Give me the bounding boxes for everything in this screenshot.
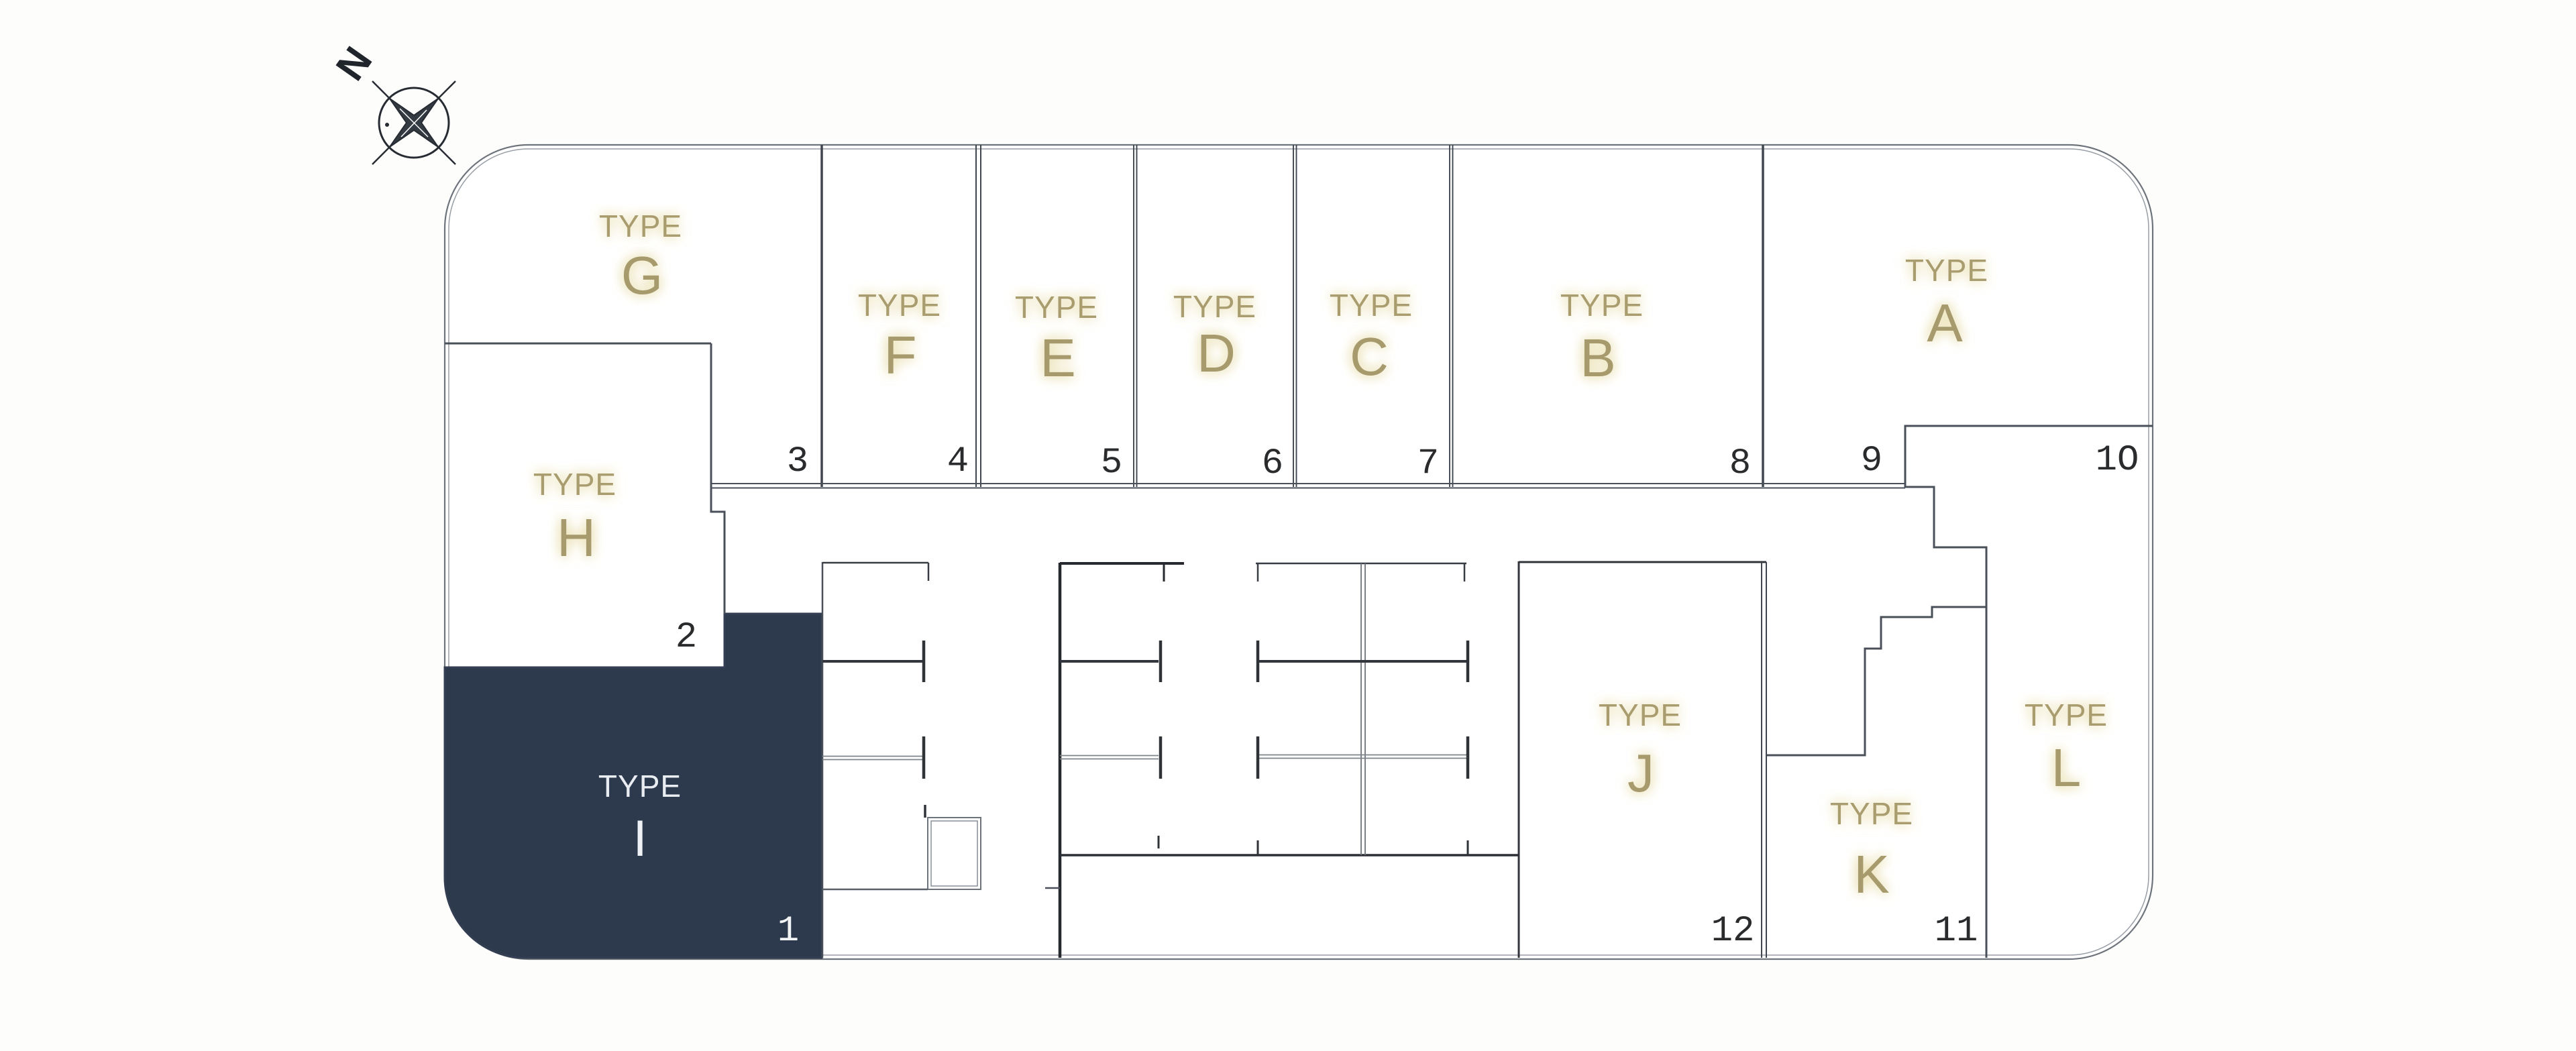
- svg-text:I: I: [633, 810, 647, 867]
- svg-text:1O: 1O: [2096, 440, 2139, 481]
- svg-text:G: G: [621, 245, 663, 305]
- svg-text:4: 4: [947, 441, 969, 482]
- svg-text:H: H: [557, 508, 596, 567]
- svg-text:C: C: [1350, 327, 1389, 386]
- svg-text:F: F: [884, 325, 917, 385]
- svg-text:TYPE: TYPE: [1830, 796, 1913, 831]
- svg-text:TYPE: TYPE: [1330, 288, 1413, 323]
- svg-text:D: D: [1197, 323, 1236, 383]
- svg-text:TYPE: TYPE: [1599, 698, 1682, 732]
- svg-text:TYPE: TYPE: [1560, 288, 1644, 323]
- svg-text:1: 1: [777, 911, 799, 952]
- svg-text:TYPE: TYPE: [1015, 290, 1098, 325]
- svg-text:7: 7: [1417, 443, 1439, 484]
- svg-text:TYPE: TYPE: [2025, 698, 2108, 732]
- svg-text:9: 9: [1861, 441, 1882, 482]
- svg-text:TYPE: TYPE: [598, 769, 682, 804]
- svg-text:8: 8: [1729, 443, 1751, 484]
- svg-text:J: J: [1627, 743, 1654, 803]
- svg-text:K: K: [1854, 844, 1889, 904]
- svg-text:TYPE: TYPE: [858, 288, 941, 323]
- svg-text:TYPE: TYPE: [533, 467, 616, 502]
- svg-text:3: 3: [787, 441, 808, 482]
- svg-text:B: B: [1580, 328, 1615, 388]
- svg-text:A: A: [1927, 293, 1963, 353]
- svg-text:TYPE: TYPE: [599, 209, 682, 243]
- svg-text:E: E: [1040, 328, 1075, 388]
- svg-text:12: 12: [1711, 911, 1755, 952]
- svg-text:11: 11: [1935, 911, 1978, 952]
- svg-text:L: L: [2051, 738, 2082, 797]
- svg-text:5: 5: [1101, 443, 1122, 484]
- svg-text:TYPE: TYPE: [1905, 253, 1988, 288]
- svg-text:6: 6: [1262, 443, 1283, 484]
- svg-text:2: 2: [676, 617, 697, 658]
- svg-text:TYPE: TYPE: [1173, 289, 1256, 324]
